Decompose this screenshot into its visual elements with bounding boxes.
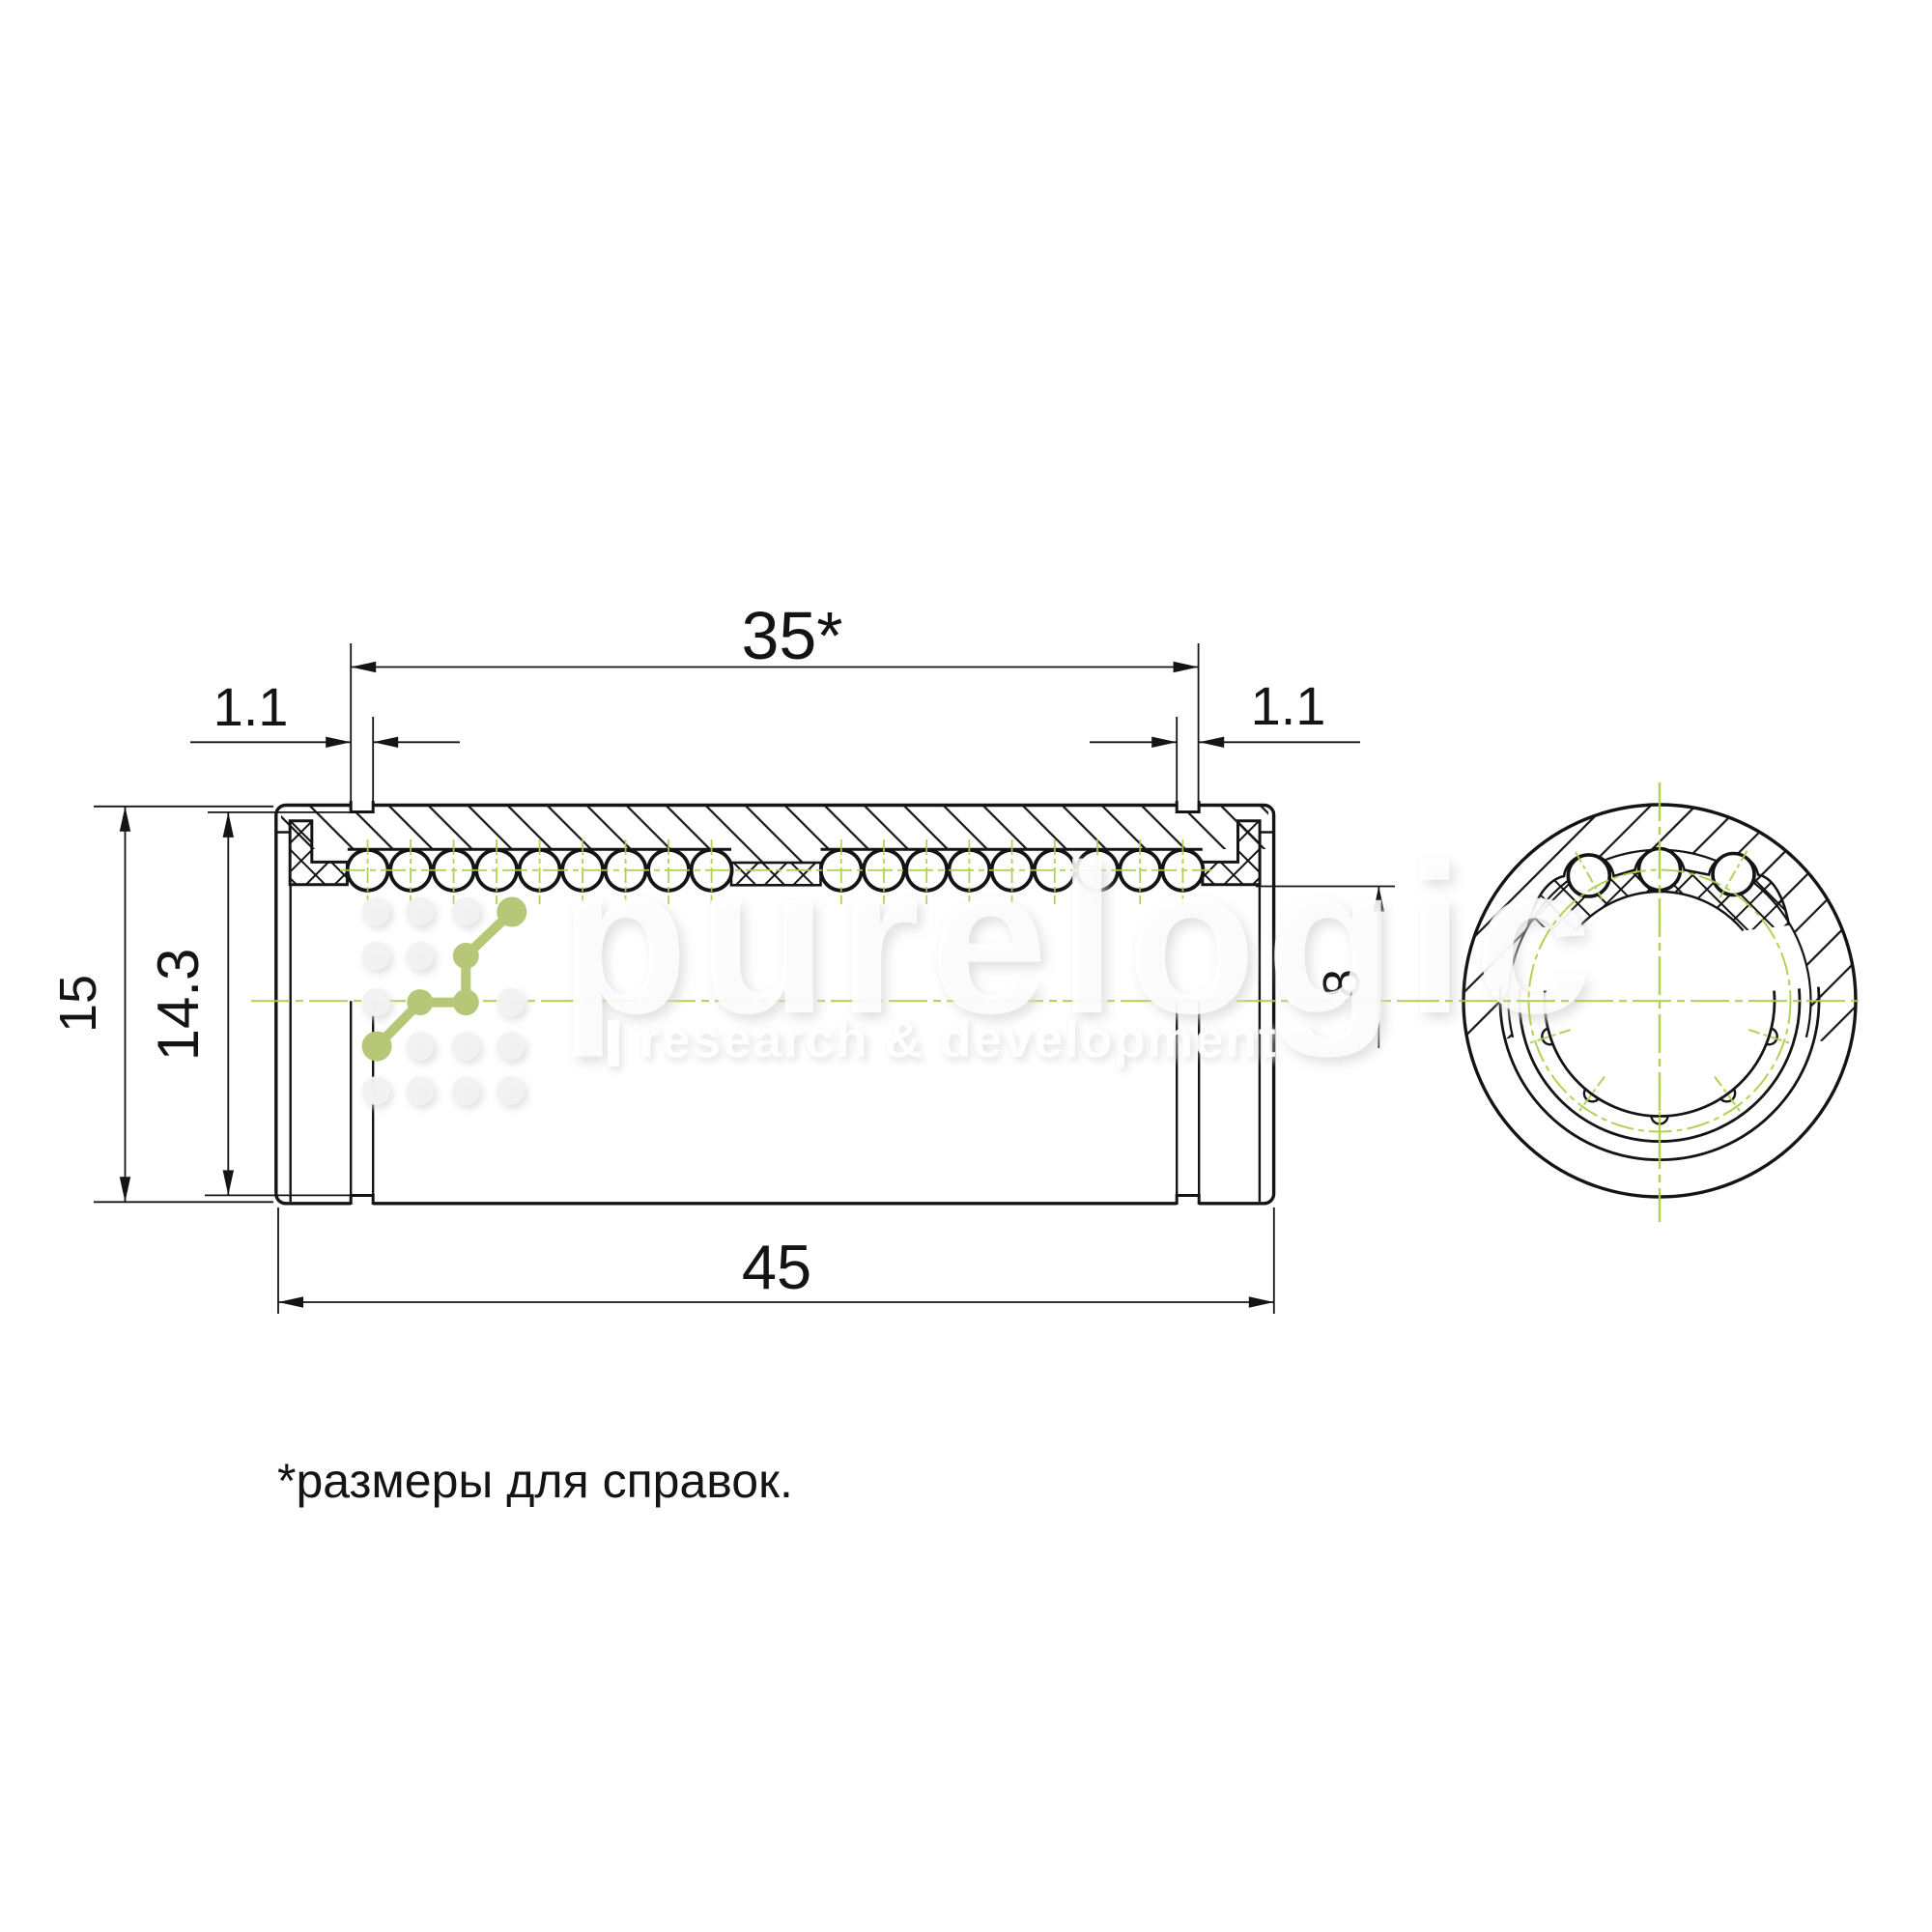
svg-text:1.1: 1.1 <box>213 676 289 737</box>
svg-text:1.1: 1.1 <box>1251 675 1326 736</box>
svg-text:14.3: 14.3 <box>146 949 211 1062</box>
svg-text:45: 45 <box>742 1232 811 1302</box>
svg-text:*размеры для справок.: *размеры для справок. <box>277 1454 793 1508</box>
svg-text:15: 15 <box>49 975 107 1033</box>
svg-text:research & development: research & development <box>639 1010 1277 1068</box>
svg-text:35*: 35* <box>741 598 842 673</box>
